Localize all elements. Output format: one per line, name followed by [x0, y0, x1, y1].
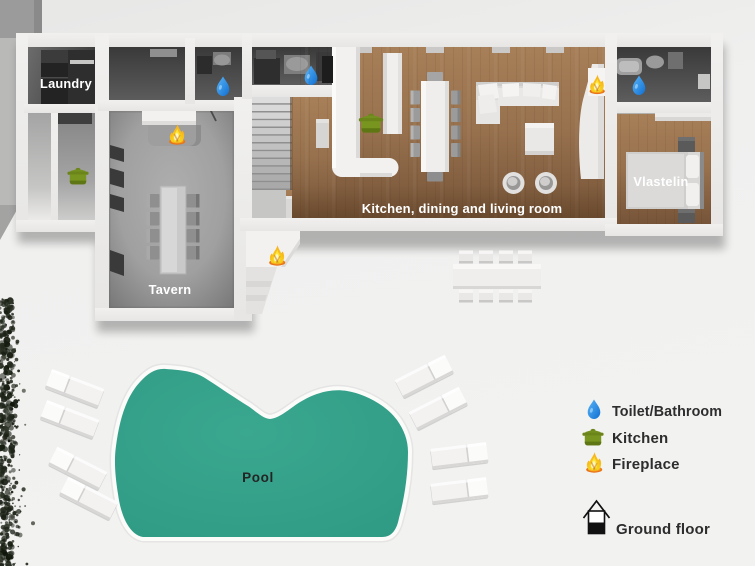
svg-text:Ground floor: Ground floor: [616, 521, 710, 538]
svg-text:Toilet/Bathroom: Toilet/Bathroom: [612, 404, 722, 420]
svg-text:Kitchen, dining and living roo: Kitchen, dining and living room: [362, 201, 562, 216]
svg-text:Pool: Pool: [242, 470, 274, 485]
svg-text:Kitchen: Kitchen: [612, 430, 668, 447]
svg-text:Vlastelin: Vlastelin: [633, 174, 688, 189]
svg-text:Fireplace: Fireplace: [612, 456, 680, 473]
svg-text:Laundry: Laundry: [40, 76, 93, 91]
svg-text:Tavern: Tavern: [149, 282, 192, 297]
